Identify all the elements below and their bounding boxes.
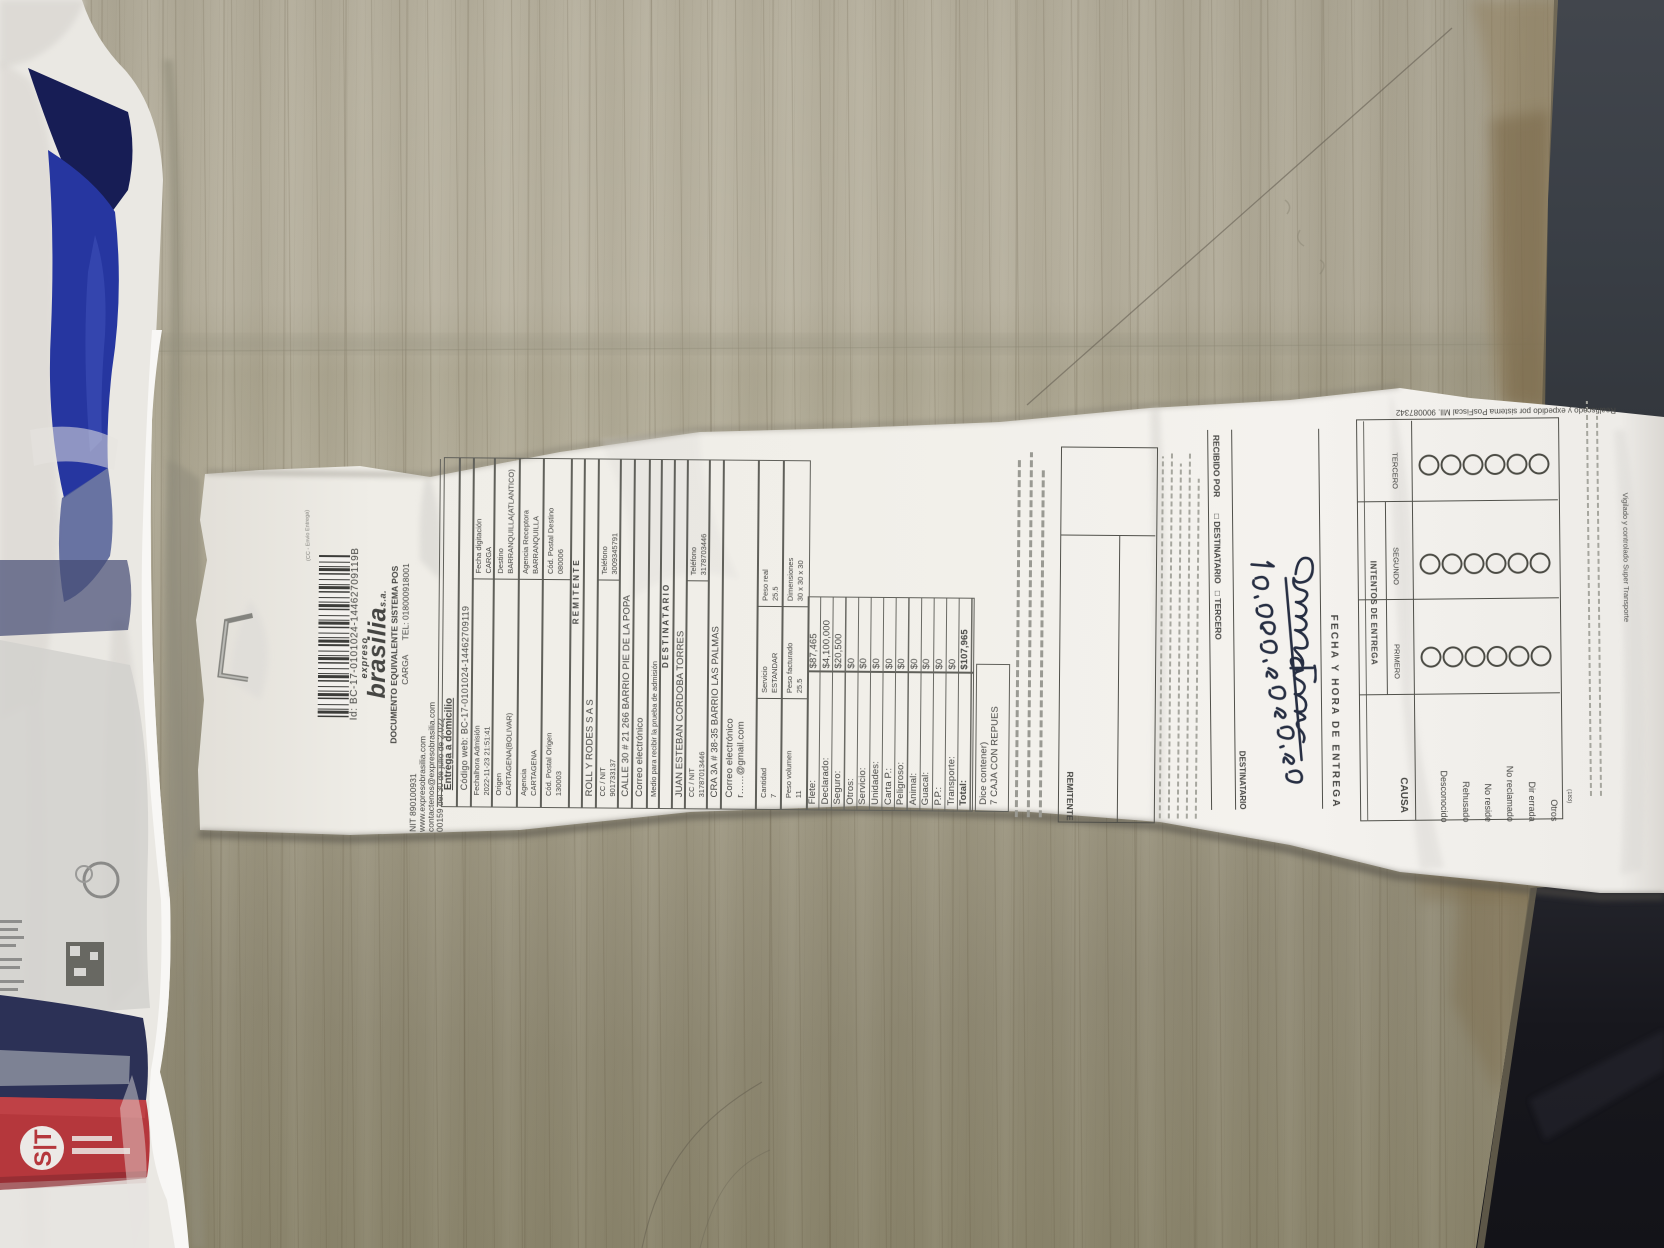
svg-text:S|T: S|T (30, 1129, 57, 1167)
